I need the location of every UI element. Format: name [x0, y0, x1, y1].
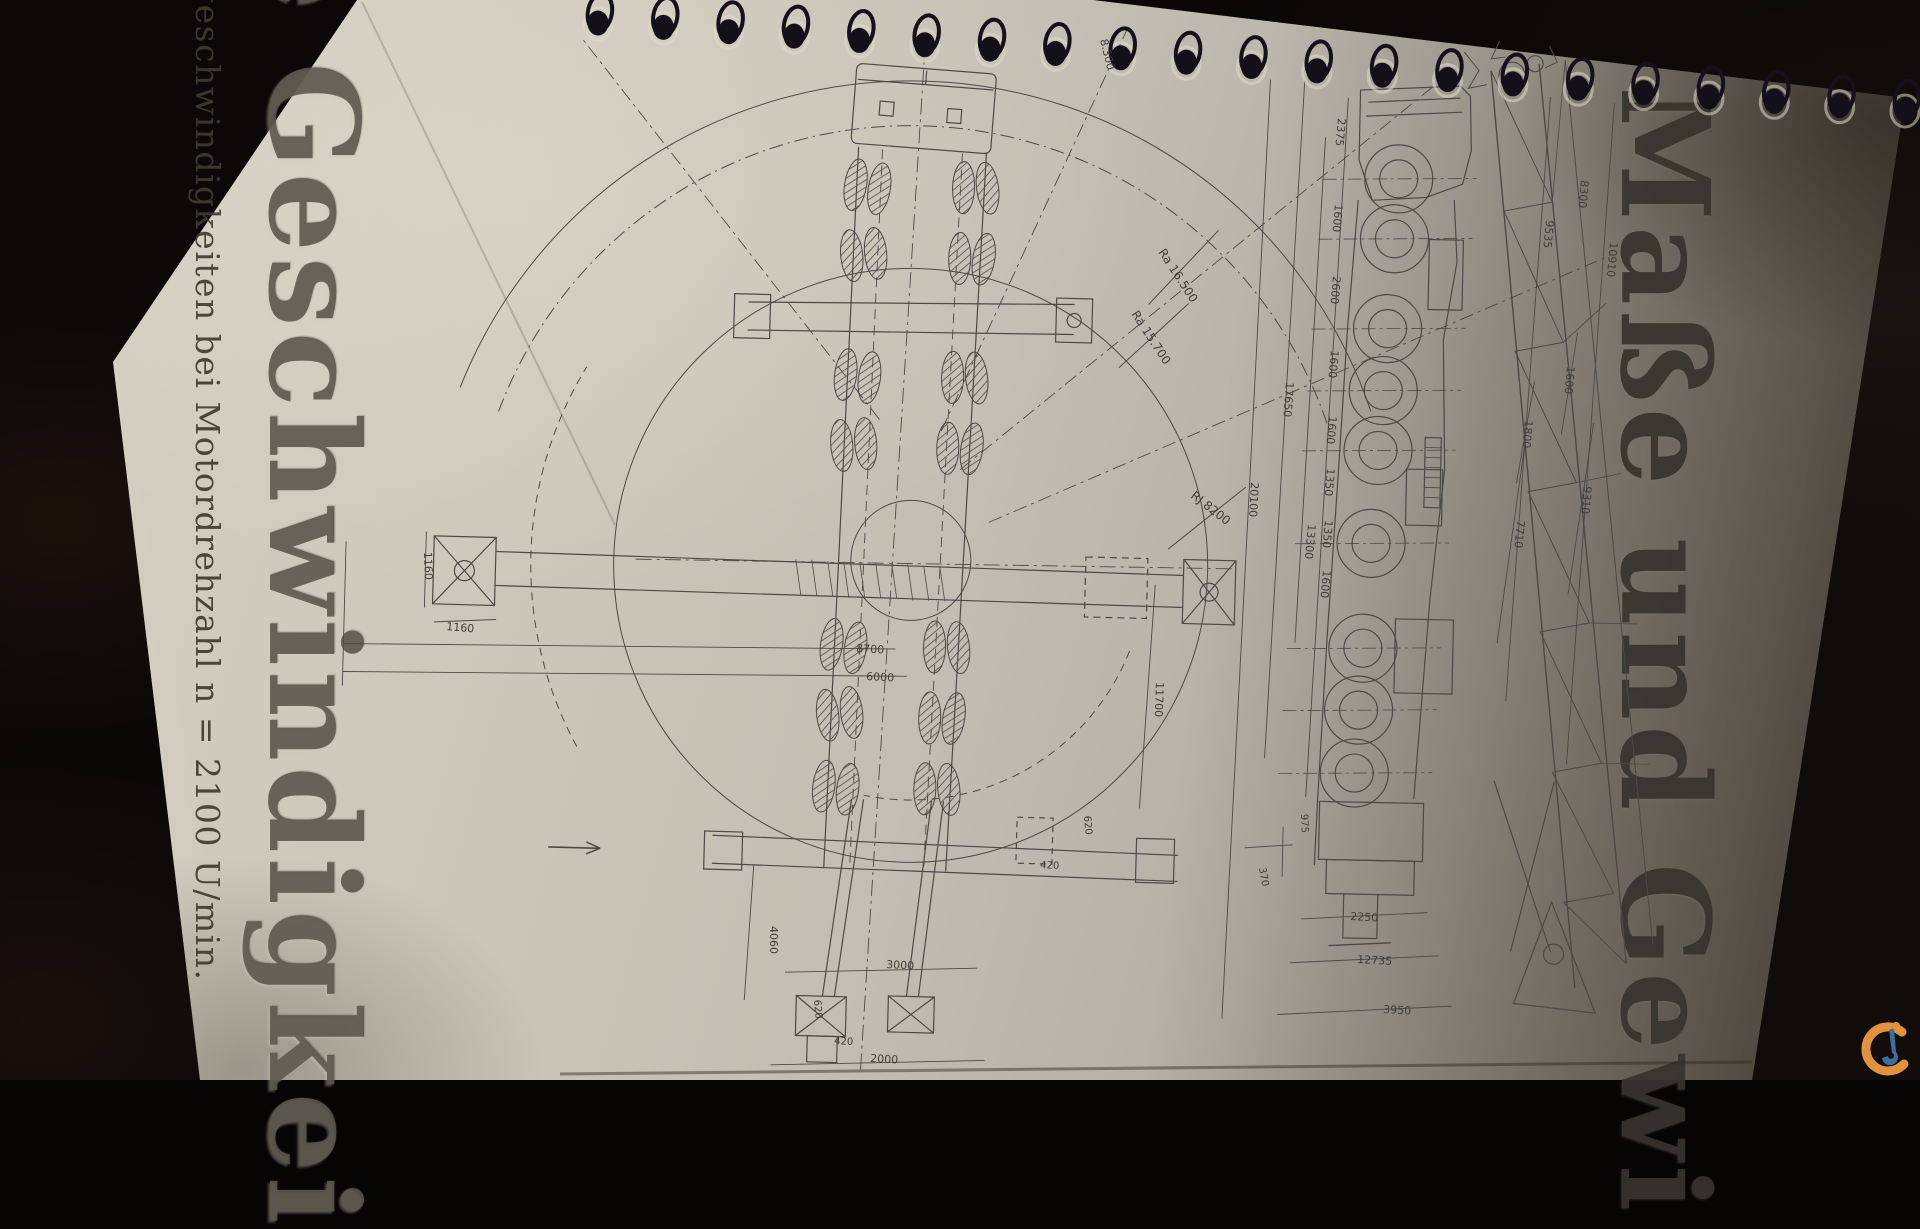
dimension-label: 3950	[1383, 1003, 1412, 1017]
dimension-label: 1350	[1322, 468, 1337, 497]
dimension-label: 2375	[1333, 118, 1348, 147]
dimension-label: 1600	[1330, 204, 1345, 233]
dimension-label: 2000	[870, 1052, 899, 1066]
dimension-label: 12735	[1357, 953, 1393, 968]
dimension-label: 1600	[1326, 350, 1341, 379]
binding-ring	[1238, 35, 1269, 83]
dimension-label: 13300	[1302, 524, 1318, 560]
dimension-label: 8700	[856, 642, 885, 656]
binding-ring	[1826, 74, 1857, 122]
top-view-drawing	[333, 8, 1618, 1080]
dimension-label: 420	[834, 1036, 854, 1048]
dimension-label: 11700	[1152, 682, 1166, 717]
page-crease	[362, 2, 615, 525]
dimension-label: 370	[1256, 867, 1270, 888]
dimension-label: 9535	[1541, 220, 1556, 249]
dimension-label: 10910	[1604, 242, 1620, 278]
dimension-label: 9310	[1579, 486, 1594, 515]
dimension-label: 2250	[1350, 910, 1379, 924]
dimension-label: 2600	[1328, 276, 1343, 305]
dimension-label: 7710	[1512, 520, 1527, 549]
dimension-label: 1160	[446, 620, 475, 635]
binding-ring	[1630, 61, 1661, 109]
dimension-label: 620	[811, 999, 824, 1019]
binding-ring	[584, 0, 615, 40]
binding-ring	[1303, 39, 1334, 87]
dimension-label: 1350	[1320, 520, 1335, 549]
dimension-label: 8300	[1576, 180, 1591, 209]
binding-ring	[1368, 44, 1399, 92]
binding-ring	[1499, 53, 1530, 101]
binding-ring	[1891, 79, 1920, 127]
binding-ring	[649, 0, 680, 44]
dimension-label: 975	[1298, 814, 1310, 833]
dimension-label: 3000	[886, 958, 915, 972]
dimension-label: 1160	[421, 552, 435, 580]
page-bottom-edge	[560, 1062, 1752, 1074]
binding-ring	[976, 18, 1007, 66]
binding-ring	[780, 5, 811, 53]
top-view-wheels	[809, 157, 1003, 820]
dimension-label: 1600	[1324, 416, 1339, 445]
dimension-label: 17650	[1281, 382, 1296, 418]
crane-network-watermark-logo	[1856, 1018, 1920, 1080]
dimension-label: 6000	[866, 670, 895, 684]
dimension-label: RJ 8200	[1188, 488, 1233, 527]
dimension-label: 620	[1081, 815, 1094, 835]
binding-ring	[1172, 31, 1203, 79]
spiral-binding	[584, 0, 1920, 127]
dimension-label: 1600	[1318, 570, 1333, 599]
binding-ring	[1760, 70, 1791, 118]
binding-ring	[1695, 66, 1726, 114]
dimension-label: 1600	[1562, 366, 1577, 395]
dimension-label: 8.300	[1097, 38, 1117, 72]
binding-ring	[1434, 48, 1465, 96]
dimension-label: 1800	[1520, 420, 1535, 449]
dimension-label: 420	[1040, 860, 1060, 872]
photographed-manual-page: geschwindigkeiten bei Motordrehzahl n = …	[0, 0, 1920, 1080]
dimension-label: 4060	[767, 926, 780, 954]
binding-ring	[1041, 22, 1072, 70]
crane-dimension-drawings: 8.300Ra 16.500Ra 15.700RJ 82001160116087…	[0, 0, 1920, 1080]
dimension-label: 20100	[1246, 482, 1261, 518]
dimension-label: Ra 16.500	[1155, 246, 1200, 305]
dimension-label: Ra 15.700	[1128, 308, 1173, 367]
binding-ring	[911, 13, 942, 61]
binding-ring	[715, 0, 746, 48]
binding-ring	[845, 9, 876, 57]
